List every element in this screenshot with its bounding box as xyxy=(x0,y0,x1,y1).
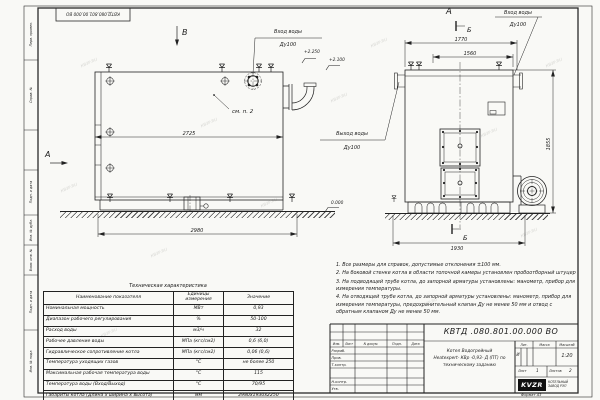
kvzr-logo: KVZR xyxy=(518,379,546,391)
frame-label: Взам. инв. № xyxy=(29,248,33,271)
role-nkontr: Н.контр. xyxy=(332,380,348,384)
front-view-valves xyxy=(392,62,502,202)
row-name: Рабочее давление воды xyxy=(44,337,174,348)
row-value: не более 250 xyxy=(224,358,294,369)
dim-front-1: 1770 xyxy=(455,37,468,43)
col-header-value: Значение xyxy=(224,292,294,305)
row-unit: мм xyxy=(174,391,224,400)
dim-side-body: 2725 xyxy=(183,131,196,137)
row-name: Диапазон рабочего регулирования xyxy=(44,315,174,326)
row-unit: °С xyxy=(174,380,224,391)
sheet-value: 1 xyxy=(536,368,539,373)
col-header-name: Наименование показателя xyxy=(44,292,174,305)
scale-label: Масштаб xyxy=(556,343,578,347)
row-name: Температура уходящих газов xyxy=(44,358,174,369)
inlet-dn-side: Ду100 xyxy=(279,42,296,48)
table-row: Максимальная рабочая температура воды°С1… xyxy=(44,369,294,380)
sheets-label: Листов xyxy=(549,369,562,373)
company-name: КОТЕЛЬНЫЙ ЗАВОД РЭП xyxy=(548,380,568,389)
tech-table-title: Техническая характеристика xyxy=(43,282,293,291)
view-marker-a-front: А xyxy=(445,7,452,17)
sheets-value: 2 xyxy=(569,368,572,373)
front-view xyxy=(385,62,550,228)
col-dokum: N докум. xyxy=(355,342,387,346)
dim-side-total: 2980 xyxy=(191,228,204,234)
frame-label: Инв. № подл. xyxy=(29,350,33,373)
mass-label: Масса xyxy=(533,343,556,347)
role-razrab: Разраб. xyxy=(332,349,346,353)
lit-label: Лит. xyxy=(515,343,533,347)
col-header-unit: Единицы измерения xyxy=(174,292,224,305)
col-data: Дата xyxy=(407,342,424,346)
view-marker-a-side: А xyxy=(44,150,50,159)
drawing-sheet: КВЗР.RU КВЗР.RU КВЗР.RU КВЗР.RU КВЗР.RU … xyxy=(0,0,600,400)
inlet-label-front: Вход воды xyxy=(504,10,532,16)
table-header-row: Наименование показателя Единицы измерени… xyxy=(44,292,294,305)
front-view-arrows xyxy=(393,41,555,245)
frame-label: Перв. примен. xyxy=(29,22,33,47)
table-row: Расход водым3/ч32 xyxy=(44,326,294,337)
dim-front-height: 1855 xyxy=(546,138,552,151)
frame-label: Инв. № дубл. xyxy=(29,219,33,242)
company-line2: ЗАВОД РЭП xyxy=(548,384,568,388)
see-note-label: см. п. 2 xyxy=(232,109,254,115)
tech-table: Техническая характеристика Наименование … xyxy=(43,282,293,400)
role-utv: Утв. xyxy=(332,387,339,391)
elevation-label: +2.100 xyxy=(329,57,345,63)
row-value: 50-100 xyxy=(224,315,294,326)
row-name: Номинальная мощность xyxy=(44,305,174,316)
scale-value: 1:20 xyxy=(556,353,578,359)
row-unit: МПа (кгс/см2) xyxy=(174,337,224,348)
outlet-label: Выход воды xyxy=(336,131,368,137)
row-value: 32 xyxy=(224,326,294,337)
row-value: 0,93 xyxy=(224,305,294,316)
section-marker-b-top: Б xyxy=(467,26,472,34)
note-line: 4. На отводящей трубе котла, до запорной… xyxy=(336,294,576,316)
row-unit: °С xyxy=(174,369,224,380)
row-value: 0,06 (0,6) xyxy=(224,348,294,359)
elevation-label: +2.250 xyxy=(304,49,320,55)
dim-front-width: 1930 xyxy=(451,246,464,252)
table-row: Номинальная мощностьМВт0,93 xyxy=(44,305,294,316)
row-unit: м3/ч xyxy=(174,326,224,337)
note-line: 3. На подводящей трубе котла, до запорно… xyxy=(336,279,576,294)
table-row: Гидравлическое сопротивление котлаМПа (к… xyxy=(44,348,294,359)
row-name: Температура воды (Вход/Выход) xyxy=(44,380,174,391)
doc-number: КВТД .080.801.00.000 ВО xyxy=(424,327,578,336)
inlet-dn-front: Ду100 xyxy=(509,22,526,28)
lit-value: И xyxy=(515,353,521,358)
row-name: Максимальная рабочая температура воды xyxy=(44,369,174,380)
role-prov: Пров. xyxy=(332,356,342,360)
note-line: 1. Все размеры для справок, допустимые о… xyxy=(336,262,576,269)
product-name-line1: Котел Водогрейный xyxy=(424,349,515,354)
row-unit: МВт xyxy=(174,305,224,316)
section-marker-b-bottom: Б xyxy=(463,234,468,242)
row-name: Гидравлическое сопротивление котла xyxy=(44,348,174,359)
side-view-arrows xyxy=(62,40,298,236)
row-unit: % xyxy=(174,315,224,326)
row-value: 70/95 xyxy=(224,380,294,391)
table-row: Температура воды (Вход/Выход)°С70/95 xyxy=(44,380,294,391)
col-list: Лист xyxy=(343,342,355,346)
row-unit: °С xyxy=(174,358,224,369)
table-row: Диапазон рабочего регулирования%50-100 xyxy=(44,315,294,326)
elevation-label: 0.000 xyxy=(331,200,344,206)
row-name: Габариты котла (Длина х ширина х высота) xyxy=(44,391,174,400)
dim-front-2: 1560 xyxy=(464,51,477,57)
product-name-line2: Heatexpert- КВр -0,93- Д (ПТ) по xyxy=(424,356,515,361)
row-value: 115 xyxy=(224,369,294,380)
frame-label: Подп. и дата xyxy=(29,181,33,203)
corner-stamp-text: КВТД.080.801.00.000 ВО xyxy=(65,12,120,17)
row-value: 2980х1930х2250 xyxy=(224,391,294,400)
inlet-label-side: Вход воды xyxy=(274,29,302,35)
note-line: 2. На боковой стенке котла в области топ… xyxy=(336,270,576,277)
row-value: 0,6 (6,0) xyxy=(224,337,294,348)
col-izm: Изм. xyxy=(330,342,343,346)
frame-label: Подп. и дата xyxy=(29,291,33,313)
role-tkontr: Т.контр. xyxy=(332,363,347,367)
frame-label: Справ. № xyxy=(29,86,33,103)
notes-block: 1. Все размеры для справок, допустимые о… xyxy=(336,262,576,318)
table-row: Температура уходящих газов°Сне более 250 xyxy=(44,358,294,369)
view-marker-b: В xyxy=(182,28,188,37)
row-name: Расход воды xyxy=(44,326,174,337)
side-view-fittings xyxy=(105,64,295,202)
product-name-line3: техническому заданию xyxy=(424,363,515,368)
format-label: Формат А3 xyxy=(521,393,541,397)
row-unit: МПа (кгс/см2) xyxy=(174,348,224,359)
table-row: Габариты котла (Длина х ширина х высота)… xyxy=(44,391,294,400)
table-row: Рабочее давление водыМПа (кгс/см2)0,6 (6… xyxy=(44,337,294,348)
side-view xyxy=(60,72,335,212)
col-podp: Подп. xyxy=(387,342,407,346)
sheet-label: Лист xyxy=(518,369,527,373)
outlet-dn: Ду100 xyxy=(343,145,360,151)
